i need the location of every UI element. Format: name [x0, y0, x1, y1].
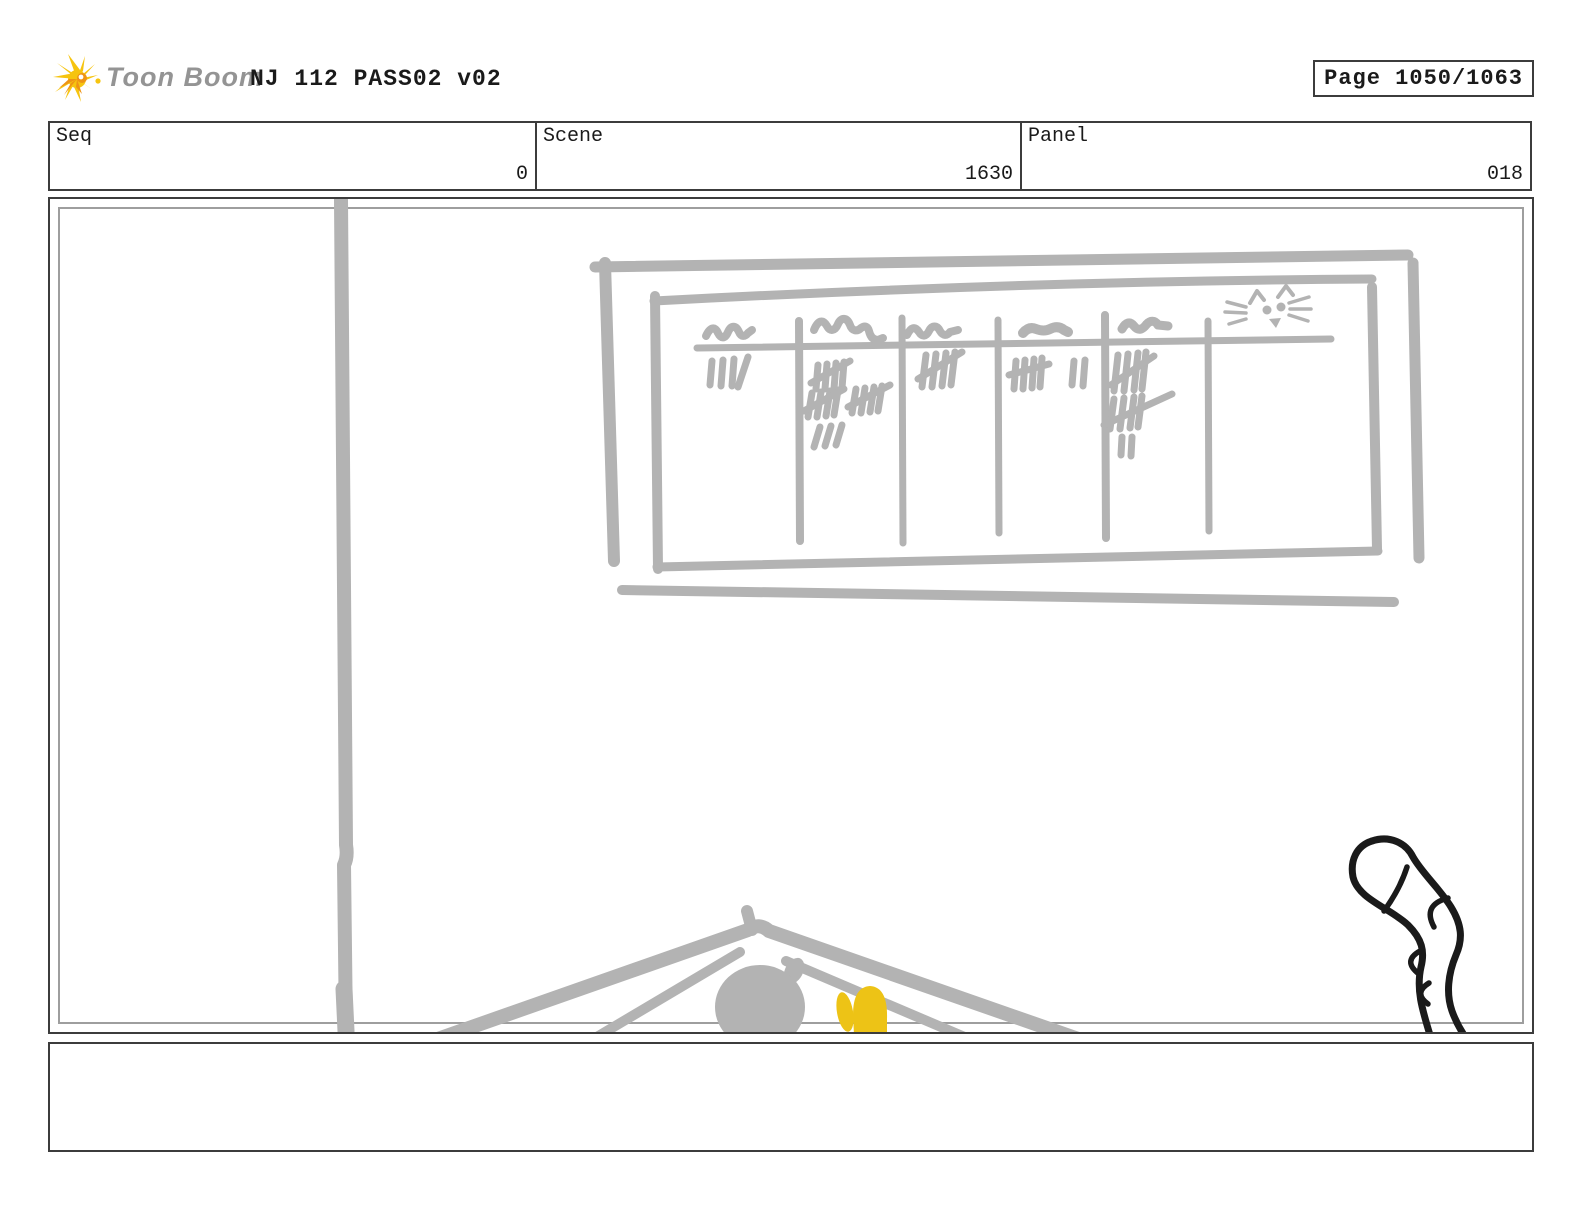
- seq-label: Seq: [56, 125, 92, 148]
- logo-wordmark: Toon Boom: [106, 62, 264, 93]
- pole-sketch: [341, 200, 347, 1032]
- character-head: [715, 954, 809, 1032]
- seq-field: Seq 0: [48, 121, 537, 191]
- caption-box: [48, 1042, 1534, 1152]
- whiteboard-sketch: [595, 255, 1419, 602]
- panel-field: Panel 018: [1020, 121, 1532, 191]
- scene-value: 1630: [965, 163, 1013, 186]
- cat-tail-sketch: [1352, 839, 1464, 1032]
- scene-label: Scene: [543, 125, 603, 148]
- panel-value: 018: [1487, 163, 1523, 186]
- page-number-badge: Page 1050/1063: [1313, 60, 1534, 97]
- info-fields-row: Seq 0 Scene 1630 Panel 018: [48, 121, 1534, 191]
- cat-face-doodle: [1225, 286, 1311, 328]
- storyboard-page: Toon Boom NJ 112 PASS02 v02 Page 1050/10…: [0, 0, 1584, 1224]
- document-title: NJ 112 PASS02 v02: [250, 66, 502, 92]
- header-squiggles: [706, 319, 1168, 340]
- panel-sketch: [50, 199, 1532, 1032]
- storyboard-drawing-panel: [48, 197, 1534, 1034]
- toonboom-logo-icon: [52, 50, 108, 108]
- scene-field: Scene 1630: [535, 121, 1022, 191]
- seq-value: 0: [516, 163, 528, 186]
- yellow-mitten: [834, 986, 887, 1032]
- panel-label: Panel: [1028, 125, 1088, 148]
